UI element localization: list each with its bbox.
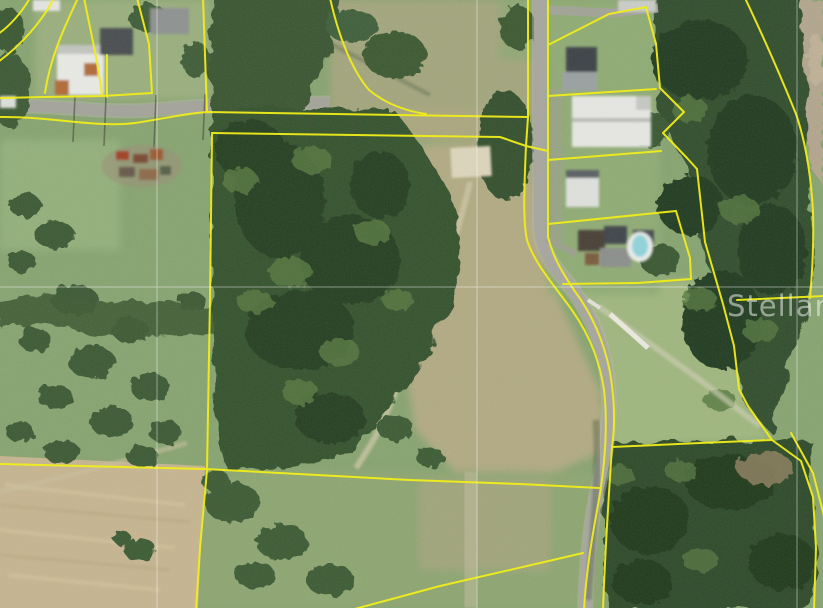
film-grain-overlay	[0, 0, 823, 608]
aerial-parcel-map: Stellar MLS	[0, 0, 823, 608]
satellite-map-canvas: Stellar MLS	[0, 0, 823, 608]
